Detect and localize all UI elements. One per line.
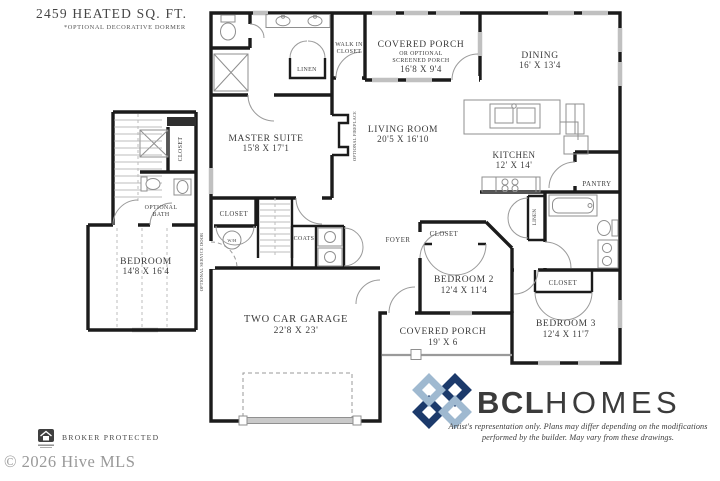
label-linen-master: LINEN [297,67,317,73]
disclaimer-line-1: Artist's representation only. Plans may … [448,422,708,431]
label-optional-bath-1: OPTIONAL [145,205,178,211]
label-wing-closet: CLOSET [178,137,184,162]
label-linen-hall: LINEN [533,209,538,226]
label-bedroom2-closet: CLOSET [430,231,459,238]
label-covered-porch-bottom: COVERED PORCH [400,327,487,337]
broker-protected-icon [38,429,54,448]
label-living-dims: 20'5 X 16'10 [377,134,429,144]
label-optional-fireplace: OPTIONAL FIREPLACE [352,111,357,161]
label-bedroom3: BEDROOM 3 [536,319,596,329]
label-covered-porch-top: COVERED PORCH [378,40,465,50]
porch-post [411,350,421,360]
label-hall-closet: CLOSET [220,211,249,218]
label-kitchen: KITCHEN [493,150,536,160]
label-kitchen-dims: 12' X 14' [496,160,533,170]
label-pantry: PANTRY [582,181,611,188]
label-walk-in-2: CLOSET [337,49,362,55]
label-garage-dims: 22'8 X 23' [274,326,319,336]
label-foyer: FOYER [386,237,411,244]
label-bedroom3-closet: CLOSET [549,280,578,287]
master-bath-fixtures [214,15,330,92]
toilet-icon [612,220,618,236]
label-walk-in-1: WALK IN [335,42,363,48]
disclaimer-line-2: performed by the builder. May vary from … [481,433,674,442]
copyright-text: © 2026 Hive MLS [4,452,135,471]
heated-sqft-text: 2459 HEATED SQ. FT. [36,6,187,21]
label-water-heater: W/H [227,238,237,243]
floor-plan-drawing: COVERED PORCH OR OPTIONAL SCREENED PORCH… [0,0,720,481]
label-bedroom3-dims: 12'4 X 11'7 [543,329,589,339]
kitchen-fixtures [464,100,588,192]
label-porch-bottom-dims: 19' X 6 [428,337,458,347]
bcl-homes-logo: BCL HOMES Artist's representation only. … [417,378,708,442]
floor-plan-page: COVERED PORCH OR OPTIONAL SCREENED PORCH… [0,0,720,481]
logo-text-bcl: BCL [477,385,545,420]
label-optional-bath-2: BATH [153,212,170,218]
wing-header-wall [167,117,196,126]
dryer-icon [318,248,342,266]
label-garage: TWO CAR GARAGE [244,314,348,325]
toilet-icon [221,15,235,22]
washer-icon [318,228,342,246]
label-coats: COATS [294,236,315,242]
label-porch-top-dims: 16'8 X 9'4 [400,64,442,74]
garage-door [239,373,361,425]
label-porch-sub1: OR OPTIONAL [399,51,443,57]
dormer-note-text: *OPTIONAL DECORATIVE DORMER [64,24,186,31]
logo-weave-icon [417,378,467,424]
main-stairs [260,198,290,258]
label-master-dims: 15'8 X 17'1 [243,143,290,153]
footer: BROKER PROTECTED © 2026 Hive MLS [4,429,159,471]
hall-bath-fixtures [549,195,618,268]
optional-room-dashes [117,228,167,328]
label-wing-bedroom-dims: 14'8 X 16'4 [123,266,170,276]
porch-slab [382,350,512,360]
label-bedroom2-dims: 12'4 X 11'4 [441,285,487,295]
broker-protected-text: BROKER PROTECTED [62,433,159,442]
label-dining-dims: 16' X 13'4 [519,60,561,70]
double-vanity-icon [598,240,618,268]
label-optional-service-door: OPTIONAL SERVICE DOOR [199,233,204,292]
label-bedroom2: BEDROOM 2 [434,275,494,285]
logo-text-homes: HOMES [545,385,681,420]
counter-icon [482,177,540,192]
header: 2459 HEATED SQ. FT. *OPTIONAL DECORATIVE… [36,6,187,31]
laundry-fixtures [318,228,342,266]
